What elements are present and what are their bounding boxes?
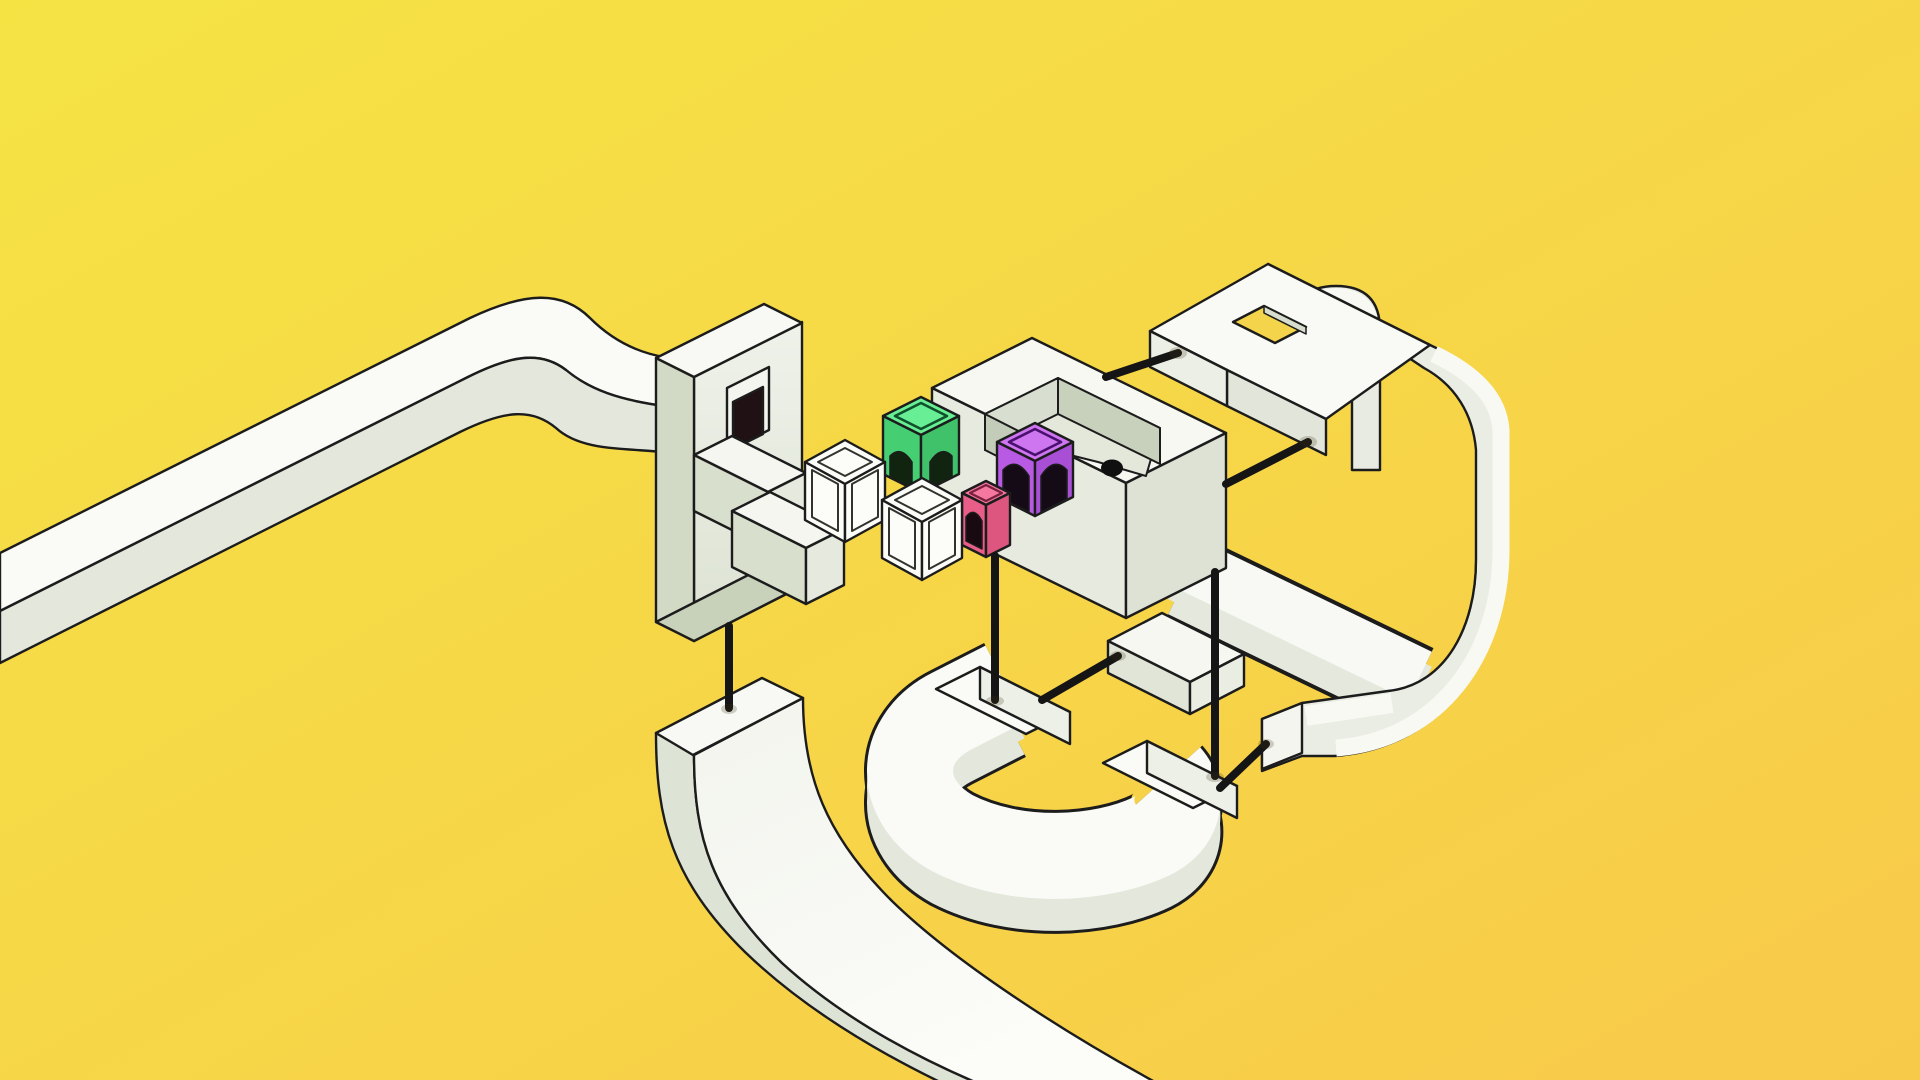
white-frame-cube-1[interactable] xyxy=(805,440,885,542)
pink-right-face[interactable] xyxy=(986,493,1010,557)
game-stage xyxy=(0,0,1920,1080)
pink-cube[interactable] xyxy=(962,481,1010,557)
slab-left-face xyxy=(656,358,694,641)
ball[interactable] xyxy=(1101,460,1123,477)
ribbon-arm-top-highlight xyxy=(1306,703,1392,716)
scene-canvas xyxy=(0,0,1920,1080)
white-frame-cube-2[interactable] xyxy=(882,478,962,580)
